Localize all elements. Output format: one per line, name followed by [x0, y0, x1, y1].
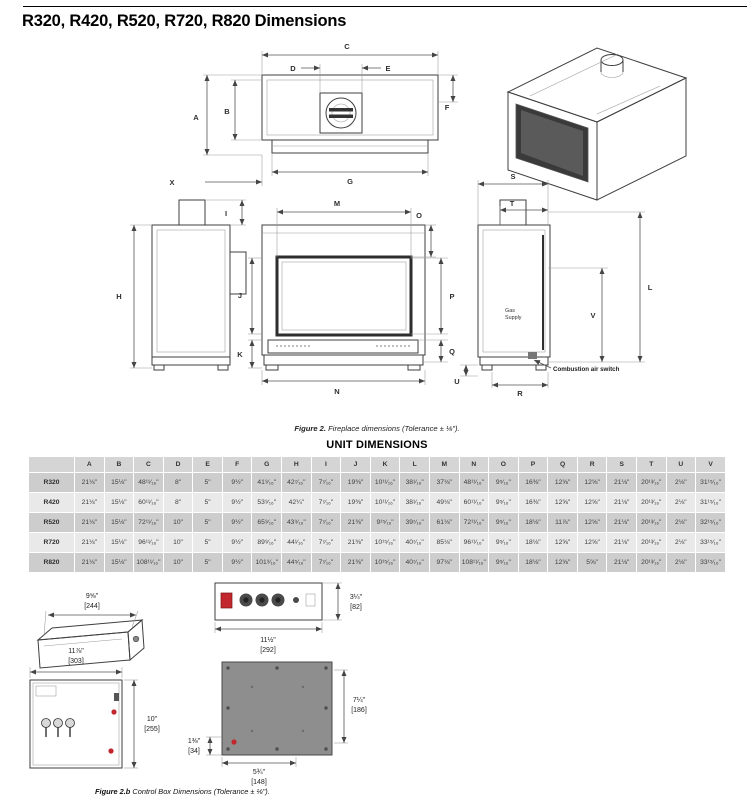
column-header-r: R: [577, 457, 607, 473]
combustion-air-switch-label: Combustion air switch: [553, 366, 620, 373]
table-corner-cell: [29, 457, 75, 473]
dim-label-a: A: [193, 113, 199, 122]
column-header-v: V: [696, 457, 726, 473]
dim-label-n: N: [334, 387, 339, 396]
dim-box-side-height-in: 7¼": [353, 697, 366, 704]
table-cell: 42¼": [282, 493, 312, 513]
dim-label-j: J: [238, 291, 242, 300]
column-header-c: C: [134, 457, 164, 473]
column-header-l: L: [400, 457, 430, 473]
dim-box-side-base-in: 5¾": [253, 769, 266, 776]
table-cell: 72¹¹⁄₁₆": [134, 513, 164, 533]
dim-label-t: T: [510, 199, 515, 208]
table-cell: 10": [163, 553, 193, 573]
dim-box-top-depth-mm: [82]: [350, 604, 362, 611]
table-cell: 21⅛": [607, 553, 637, 573]
table-cell: 65⁹⁄₁₆": [252, 513, 282, 533]
table-cell: 18⅛": [518, 553, 548, 573]
figure2b-caption: Figure 2.b Control Box Dimensions (Toler…: [95, 787, 270, 796]
table-cell: 18⅛": [518, 533, 548, 553]
control-box-top-view-drawing: 3¼" [82] 11½" [292]: [215, 583, 363, 654]
table-cell: 15⅛": [104, 533, 134, 553]
table-cell: 20¹³⁄₁₆": [636, 473, 666, 493]
table-cell: 18⅛": [518, 513, 548, 533]
row-header-r420: R420: [29, 493, 75, 513]
table-cell: 7⁷⁄₁₆": [311, 533, 341, 553]
table-cell: 60¹¹⁄₁₆": [134, 493, 164, 513]
dim-label-v: V: [590, 311, 595, 320]
column-header-u: U: [666, 457, 696, 473]
table-cell: 43⁹⁄₁₆": [282, 513, 312, 533]
dim-box-top-width-mm: [244]: [84, 603, 100, 610]
table-cell: 40⁷⁄₁₆": [400, 553, 430, 573]
table-cell: 49⅛": [429, 493, 459, 513]
table-cell: 9½": [222, 553, 252, 573]
table-cell: 9¹⁵⁄₁₆": [370, 513, 400, 533]
table-cell: 10": [163, 513, 193, 533]
dim-box-side-offset-in: 1⅜": [188, 738, 201, 745]
table-cell: 61⅛": [429, 513, 459, 533]
table-cell: 9½": [222, 513, 252, 533]
table-cell: 21⅛": [607, 493, 637, 513]
dim-box-front-height-in: 10": [147, 716, 158, 723]
table-cell: 96¹¹⁄₁₆": [459, 533, 489, 553]
table-cell: 20¹³⁄₁₆": [636, 493, 666, 513]
table-cell: 5⅝": [577, 553, 607, 573]
row-header-r820: R820: [29, 553, 75, 573]
column-header-o: O: [489, 457, 519, 473]
dim-label-r: R: [517, 389, 523, 398]
table-cell: 38¹⁄₁₆": [400, 493, 430, 513]
dim-label-o: O: [416, 211, 422, 220]
control-box-side-view-drawing: 7¼" [186] 1⅜" [34] 5¾" [148]: [188, 662, 367, 786]
dim-label-s: S: [510, 172, 515, 181]
column-header-n: N: [459, 457, 489, 473]
unit-dimensions-table: ABCDEFGHIJKLMNOPQRSTUVR32021⅛"15⅛"48¹¹⁄₁…: [28, 456, 726, 573]
table-cell: 21⅛": [75, 473, 105, 493]
table-cell: 15⅛": [104, 473, 134, 493]
isometric-view-drawing: [508, 48, 686, 200]
table-cell: 21⅜": [341, 553, 371, 573]
table-row-r420: R42021⅛"15⅛"60¹¹⁄₁₆"8"5"9½"53⁹⁄₁₆"42¼"7⁷…: [29, 493, 726, 513]
figure2-caption: Figure 2. Fireplace dimensions (Toleranc…: [0, 424, 754, 433]
table-cell: 7⁷⁄₁₆": [311, 513, 341, 533]
table-cell: 2⅛": [666, 473, 696, 493]
table-cell: 12⅝": [548, 553, 578, 573]
table-cell: 9½": [222, 493, 252, 513]
table-cell: 2⅛": [666, 513, 696, 533]
column-header-a: A: [75, 457, 105, 473]
dim-box-front-width-mm: [303]: [68, 658, 84, 665]
table-cell: 21⅛": [75, 553, 105, 573]
dim-label-e: E: [385, 64, 390, 73]
table-cell: 44⁵⁄₁₆": [282, 553, 312, 573]
table-row-r820: R82021⅛"15⅛"108¹¹⁄₁₆"10"5"9½"101⁹⁄₁₆"44⁵…: [29, 553, 726, 573]
top-view-drawing: [203, 51, 458, 186]
figure2b-caption-label: Figure 2.b: [95, 787, 130, 796]
table-cell: 10¹¹⁄₁₆": [370, 493, 400, 513]
control-box-front-view-drawing: 11⅞" [303] 10" [255]: [30, 648, 160, 768]
dim-label-u: U: [454, 377, 459, 386]
table-cell: 10¹⁵⁄₁₆": [370, 553, 400, 573]
table-cell: 8": [163, 493, 193, 513]
table-cell: 7⁷⁄₁₆": [311, 493, 341, 513]
gas-supply-label: Gas: [505, 308, 515, 314]
table-cell: 60¹¹⁄₁₆": [459, 493, 489, 513]
table-cell: 40⁷⁄₁₆": [400, 533, 430, 553]
table-row-r320: R32021⅛"15⅛"48¹¹⁄₁₆"8"5"9½"41⁹⁄₁₆"42⁷⁄₁₆…: [29, 473, 726, 493]
table-cell: 39⁷⁄₁₆": [400, 513, 430, 533]
table-cell: 9½": [222, 533, 252, 553]
unit-dimensions-heading: UNIT DIMENSIONS: [0, 439, 754, 451]
dim-box-side-height-mm: [186]: [351, 707, 367, 714]
table-cell: 15⅛": [104, 513, 134, 533]
table-cell: 37⅛": [429, 473, 459, 493]
table-cell: 15⅛": [104, 553, 134, 573]
dim-box-front-width-in: 11⅞": [68, 648, 84, 655]
table-cell: 12⅝": [548, 493, 578, 513]
dim-label-p: P: [449, 292, 454, 301]
table-cell: 20¹³⁄₁₆": [636, 553, 666, 573]
dim-label-k: K: [237, 350, 243, 359]
row-header-r320: R320: [29, 473, 75, 493]
dim-label-x: X: [169, 178, 174, 187]
table-cell: 21⅜": [341, 533, 371, 553]
figure2-caption-label: Figure 2.: [294, 424, 326, 433]
column-header-s: S: [607, 457, 637, 473]
table-row-r720: R72021⅛"15⅛"96¹¹⁄₁₆"10"5"9½"89⁹⁄₁₆"44¹⁄₁…: [29, 533, 726, 553]
column-header-b: B: [104, 457, 134, 473]
table-cell: 101⁹⁄₁₆": [252, 553, 282, 573]
table-cell: 21⅛": [607, 533, 637, 553]
dim-box-side-offset-mm: [34]: [188, 748, 200, 755]
table-cell: 7⁷⁄₁₆": [311, 473, 341, 493]
table-cell: 12⅝": [577, 513, 607, 533]
table-cell: 5": [193, 553, 223, 573]
table-cell: 44¹⁄₁₆": [282, 533, 312, 553]
dim-label-d: D: [290, 64, 296, 73]
dim-box-top-length-mm: [292]: [260, 647, 276, 654]
dim-label-h: H: [116, 292, 121, 301]
table-cell: 85⅛": [429, 533, 459, 553]
table-cell: 11⅞": [548, 513, 578, 533]
column-header-k: K: [370, 457, 400, 473]
dim-label-i: I: [225, 209, 227, 218]
table-cell: 2⅛": [666, 553, 696, 573]
table-cell: 97⅛": [429, 553, 459, 573]
column-header-j: J: [341, 457, 371, 473]
table-cell: 108¹¹⁄₁₆": [459, 553, 489, 573]
right-side-view-drawing: [460, 180, 645, 388]
dim-label-f: F: [445, 103, 450, 112]
gas-supply-label-2: Supply: [505, 315, 522, 321]
table-cell: 2⅛": [666, 493, 696, 513]
table-cell: 16⅜": [518, 493, 548, 513]
table-cell: 19⅜": [341, 473, 371, 493]
manual-page: R320, R420, R520, R720, R820 Dimensions: [0, 0, 754, 804]
table-cell: 5": [193, 513, 223, 533]
table-cell: 89⁹⁄₁₆": [252, 533, 282, 553]
dim-label-g: G: [347, 177, 353, 186]
table-cell: 12⅝": [577, 473, 607, 493]
table-cell: 38¹⁄₁₆": [400, 473, 430, 493]
table-cell: 72¹¹⁄₁₆": [459, 513, 489, 533]
table-cell: 53⁹⁄₁₆": [252, 493, 282, 513]
column-header-t: T: [636, 457, 666, 473]
figure2-caption-text: Fireplace dimensions (Tolerance ± ⅛").: [326, 424, 460, 433]
table-cell: 20¹³⁄₁₆": [636, 533, 666, 553]
dim-label-q: Q: [449, 347, 455, 356]
left-side-view-drawing: [130, 200, 246, 370]
table-cell: 96¹¹⁄₁₆": [134, 533, 164, 553]
row-header-r520: R520: [29, 513, 75, 533]
table-cell: 16⅜": [518, 473, 548, 493]
table-cell: 19⅜": [341, 493, 371, 513]
column-header-q: Q: [548, 457, 578, 473]
table-cell: 21⅛": [607, 513, 637, 533]
table-cell: 21⅜": [341, 513, 371, 533]
table-cell: 21⅛": [75, 513, 105, 533]
table-cell: 12⅝": [577, 493, 607, 513]
table-cell: 41⁹⁄₁₆": [252, 473, 282, 493]
dim-label-b: B: [224, 107, 230, 116]
column-header-h: H: [282, 457, 312, 473]
table-cell: 9½": [222, 473, 252, 493]
table-cell: 5": [193, 473, 223, 493]
column-header-g: G: [252, 457, 282, 473]
table-cell: 8": [163, 473, 193, 493]
dim-label-l: L: [648, 283, 653, 292]
table-cell: 9⁵⁄₁₆": [489, 493, 519, 513]
column-header-f: F: [222, 457, 252, 473]
table-cell: 12⅝": [548, 473, 578, 493]
figure2b-drawing: 9⅝" [244] 3¼" [82] 11½" [292]: [0, 575, 754, 804]
column-header-p: P: [518, 457, 548, 473]
table-cell: 33¹⁵⁄₁₆": [696, 553, 726, 573]
table-cell: 31¹⁵⁄₁₆": [696, 493, 726, 513]
table-cell: 31¹⁵⁄₁₆": [696, 473, 726, 493]
figure2b-caption-text: Control Box Dimensions (Tolerance ± ⅛").: [130, 787, 270, 796]
front-view-drawing: [248, 208, 448, 385]
table-cell: 12⅝": [577, 533, 607, 553]
column-header-d: D: [163, 457, 193, 473]
table-cell: 12⅝": [548, 533, 578, 553]
column-header-i: I: [311, 457, 341, 473]
table-cell: 7⁷⁄₁₆": [311, 553, 341, 573]
dim-box-top-depth-in: 3¼": [350, 594, 363, 601]
table-cell: 21⅛": [607, 473, 637, 493]
dim-box-side-base-mm: [148]: [251, 779, 267, 786]
table-cell: 48¹¹⁄₁₆": [459, 473, 489, 493]
table-cell: 5": [193, 533, 223, 553]
table-cell: 21⅛": [75, 533, 105, 553]
table-cell: 108¹¹⁄₁₆": [134, 553, 164, 573]
table-cell: 10¹¹⁄₁₆": [370, 473, 400, 493]
table-cell: 15⅛": [104, 493, 134, 513]
table-cell: 9⁵⁄₁₆": [489, 553, 519, 573]
table-cell: 48¹¹⁄₁₆": [134, 473, 164, 493]
dim-label-m: M: [334, 199, 340, 208]
table-row-r520: R52021⅛"15⅛"72¹¹⁄₁₆"10"5"9½"65⁹⁄₁₆"43⁹⁄₁…: [29, 513, 726, 533]
table-cell: 10¹⁵⁄₁₆": [370, 533, 400, 553]
table-cell: 20¹³⁄₁₆": [636, 513, 666, 533]
control-box-iso-drawing: 9⅝" [244]: [38, 593, 144, 668]
column-header-m: M: [429, 457, 459, 473]
table-cell: 21⅛": [75, 493, 105, 513]
dim-box-front-height-mm: [255]: [144, 726, 160, 733]
row-header-r720: R720: [29, 533, 75, 553]
table-cell: 33¹⁵⁄₁₆": [696, 533, 726, 553]
table-cell: 9⁵⁄₁₆": [489, 533, 519, 553]
table-cell: 2⅛": [666, 533, 696, 553]
dim-label-c: C: [344, 42, 350, 51]
table-cell: 42⁷⁄₁₆": [282, 473, 312, 493]
table-cell: 9⁵⁄₁₆": [489, 473, 519, 493]
table-cell: 10": [163, 533, 193, 553]
column-header-e: E: [193, 457, 223, 473]
table-cell: 5": [193, 493, 223, 513]
dim-box-top-width-in: 9⅝": [86, 593, 99, 600]
table-cell: 9⁵⁄₁₆": [489, 513, 519, 533]
table-cell: 32¹⁵⁄₁₆": [696, 513, 726, 533]
figure2-drawing: C D E F A B G X I M O H J K P Q N S T L …: [0, 0, 754, 420]
dim-box-top-length-in: 11½": [260, 636, 276, 644]
